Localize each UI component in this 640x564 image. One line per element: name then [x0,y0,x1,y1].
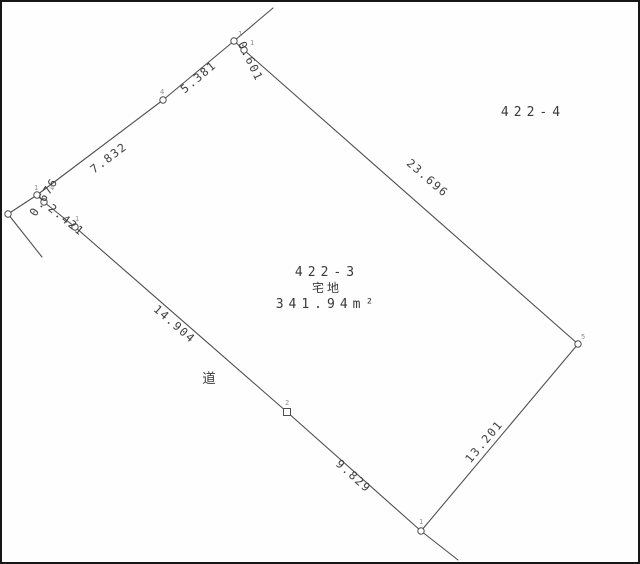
road-spur-lower [8,214,42,257]
parcel-number-label: 422-3 [295,265,359,280]
road-edge-extension-bottom [421,531,458,560]
point-label-north-mid: 4 [160,88,164,96]
dimension-west-lower: 14.904 [151,302,199,346]
survey-point-north-mid [160,97,166,103]
dimension-west-upper: 2.421 [46,201,88,239]
dimension-south-east: 13.201 [462,417,506,465]
point-label-south: 1 [419,518,423,526]
point-label-north-b: 1 [250,39,254,47]
survey-point-road-spur [5,211,11,217]
survey-point-east [575,341,581,347]
cadastral-plot-svg: 5.381 7.832 0.676 2.421 14.904 9.829 13.… [2,2,638,562]
boundary-south-east [421,344,578,531]
point-label-east: 5 [581,333,585,341]
adjacent-parcel-number-label: 422-4 [501,105,565,120]
dimension-east: 23.696 [404,156,452,200]
dimension-north-upper: 5.381 [178,58,220,96]
survey-point-southwest-mid [284,409,291,416]
point-label-north-a: 1 [238,30,242,38]
survey-point-north-a [231,38,237,44]
dimension-north-lower: 7.832 [87,139,129,176]
dimension-south-west: 9.829 [333,457,374,496]
survey-map-sheet: 5.381 7.832 0.676 2.421 14.904 9.829 13.… [0,0,640,564]
road-label: 道 [202,371,216,387]
point-label-west-lower: 1 [75,215,79,223]
point-label-west-a: 1 [34,184,38,192]
point-label-west-b: 4 [50,184,54,192]
parcel-area-label: 341.94m² [276,297,379,312]
point-label-southwest-mid: 2 [285,399,289,407]
parcel-category-label: 宅地 [312,280,342,295]
survey-point-south [418,528,424,534]
